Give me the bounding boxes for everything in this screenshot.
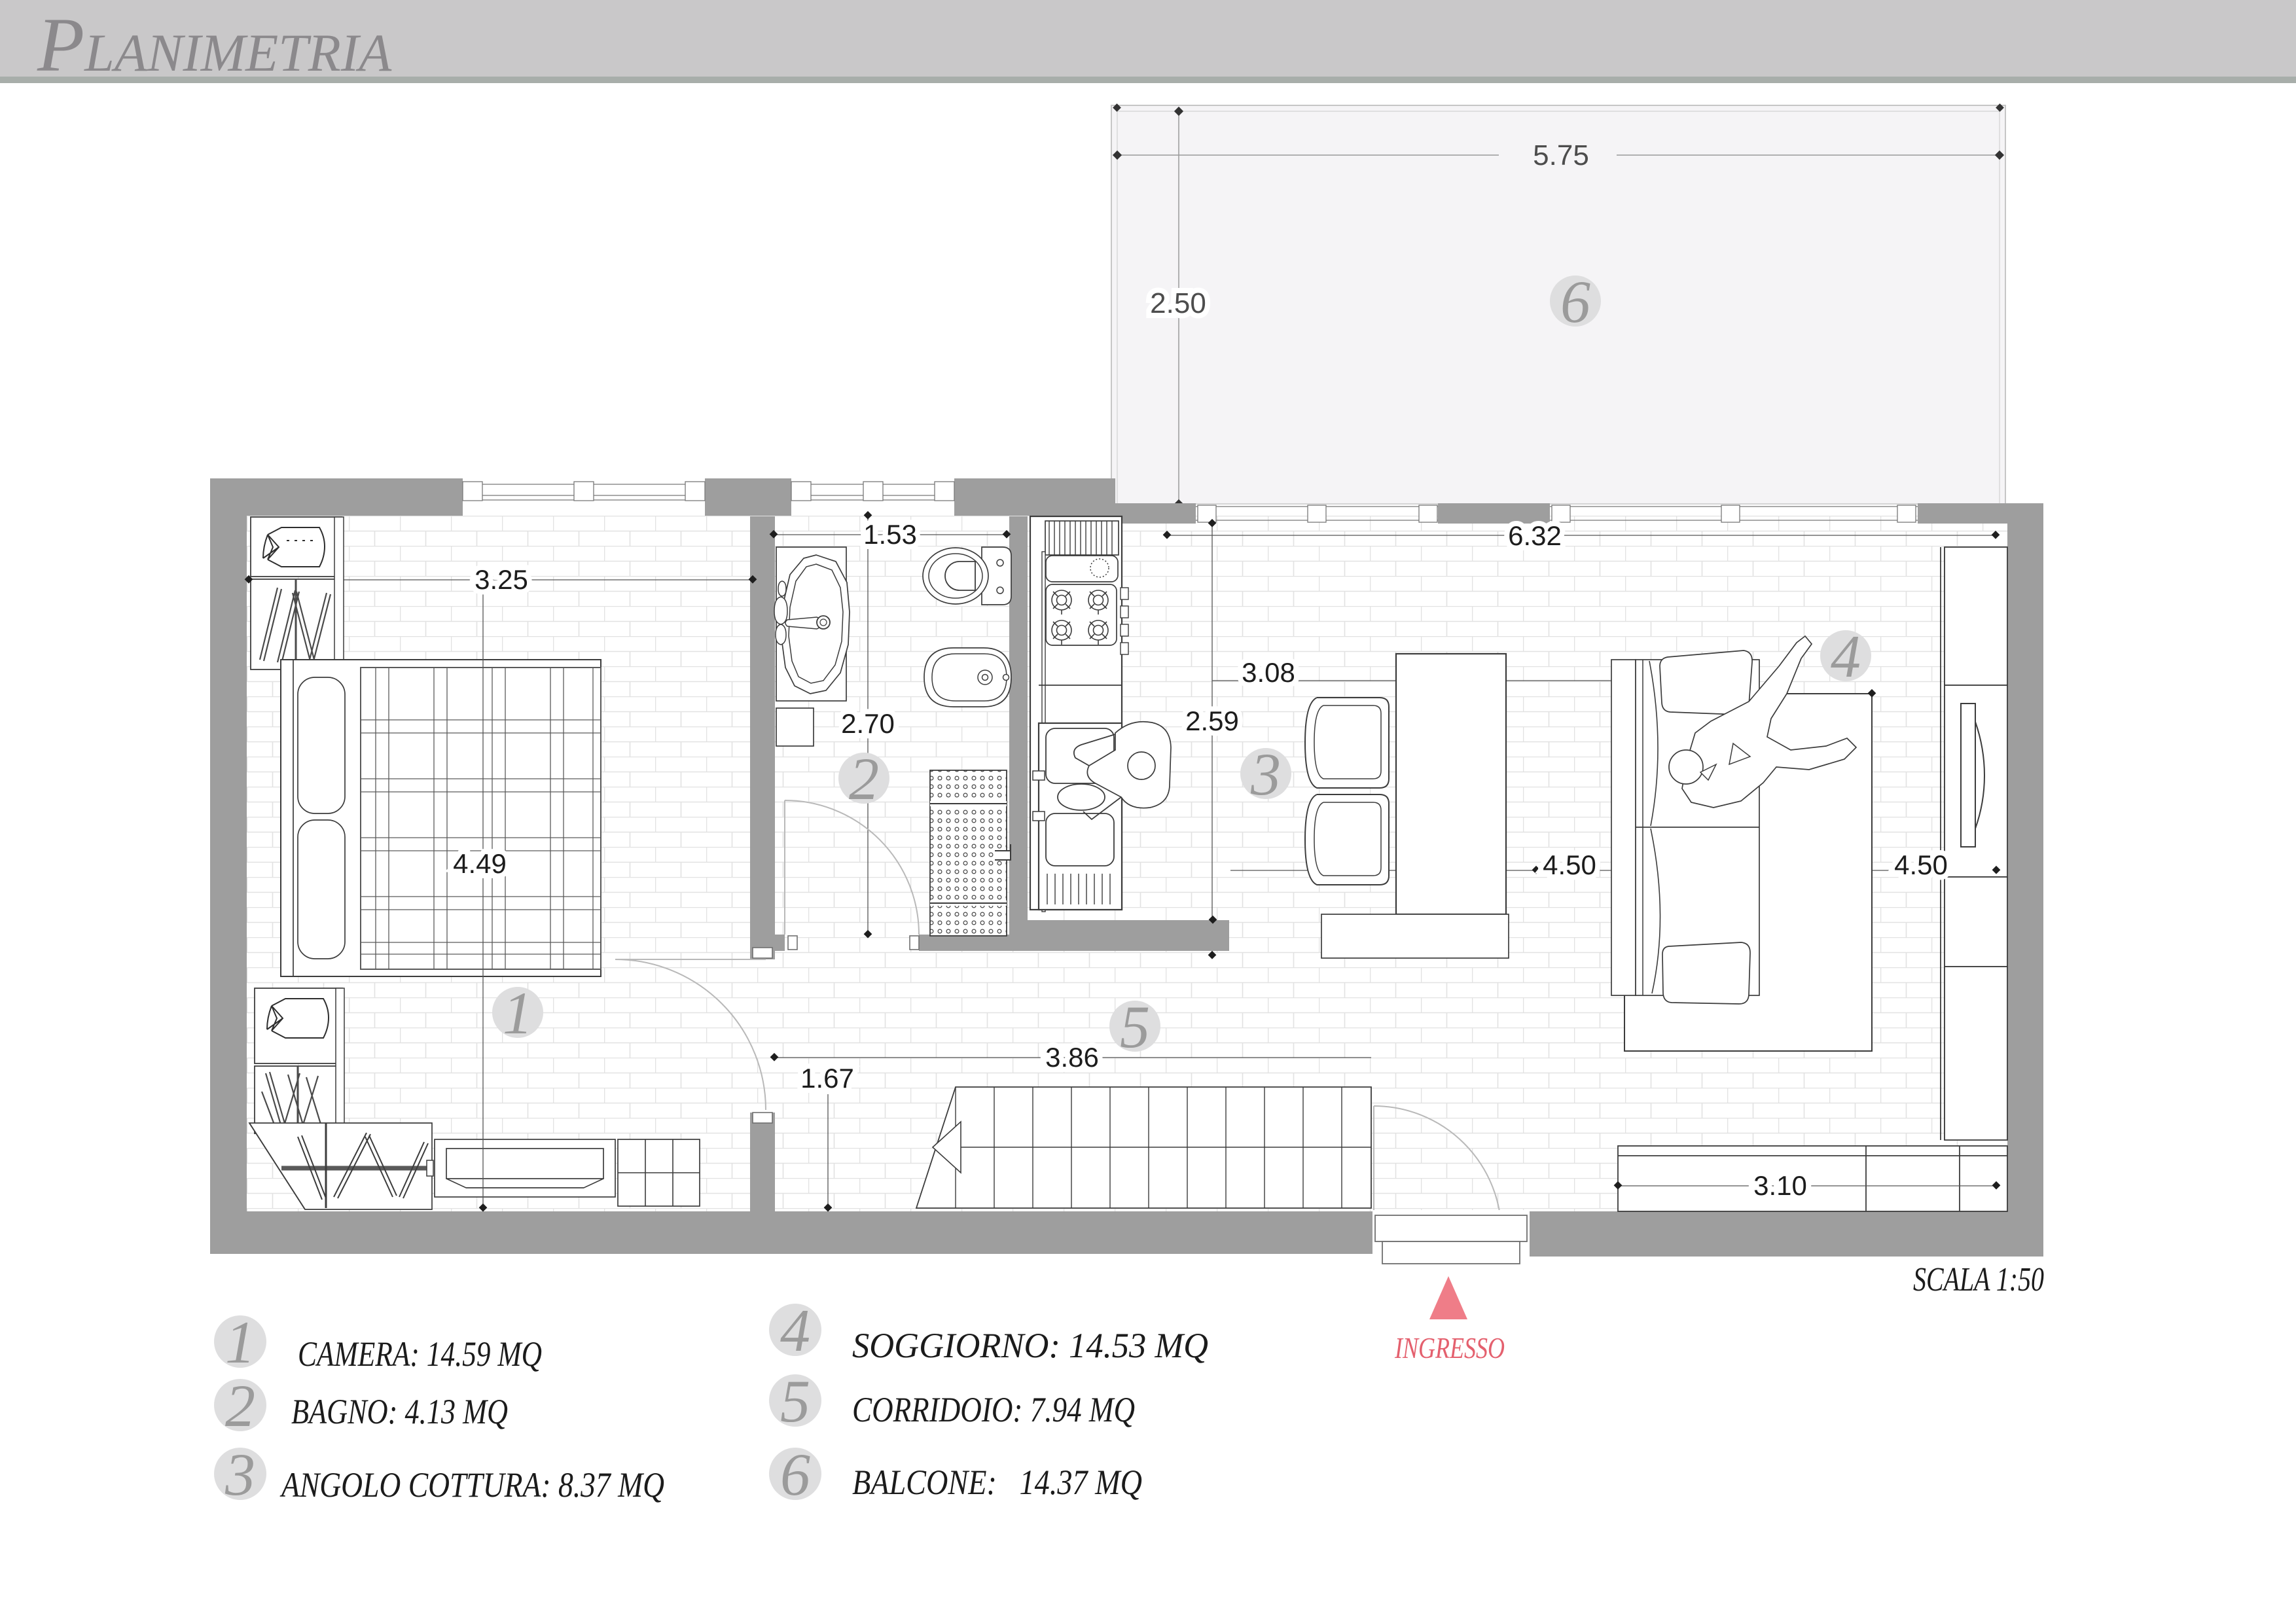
svg-text:3.08: 3.08 [1242, 657, 1295, 688]
svg-text:SOGGIORNO: 14.53 MQ: SOGGIORNO: 14.53 MQ [852, 1326, 1208, 1365]
svg-text:2: 2 [225, 1372, 255, 1439]
svg-text:2.70: 2.70 [841, 708, 895, 739]
svg-text:1.67: 1.67 [800, 1063, 854, 1094]
svg-text:4.50: 4.50 [1894, 849, 1948, 880]
svg-text:2: 2 [849, 745, 879, 812]
svg-text:CAMERA: 14.59 MQ: CAMERA: 14.59 MQ [298, 1334, 542, 1374]
svg-text:4.49: 4.49 [453, 848, 507, 879]
svg-text:1.53: 1.53 [863, 519, 917, 550]
svg-text:5: 5 [780, 1368, 810, 1435]
svg-text:BALCONE: 14.37 MQ: BALCONE: 14.37 MQ [852, 1463, 1142, 1502]
svg-text:INGRESSO: INGRESSO [1394, 1331, 1505, 1364]
svg-text:4: 4 [1831, 623, 1861, 690]
svg-text:3.25: 3.25 [475, 564, 528, 595]
svg-text:4: 4 [780, 1297, 810, 1364]
svg-text:CORRIDOIO: 7.94 MQ: CORRIDOIO: 7.94 MQ [852, 1390, 1135, 1429]
svg-text:3: 3 [224, 1441, 255, 1508]
svg-text:6: 6 [780, 1441, 810, 1508]
svg-text:5.75: 5.75 [1533, 139, 1589, 171]
svg-text:3: 3 [1250, 741, 1281, 808]
svg-text:ANGOLO COTTURA: 8.37 MQ: ANGOLO COTTURA: 8.37 MQ [279, 1465, 664, 1505]
svg-text:SCALA 1:50: SCALA 1:50 [1913, 1261, 2044, 1298]
svg-text:3.86: 3.86 [1045, 1042, 1099, 1073]
svg-text:5: 5 [1120, 993, 1150, 1060]
svg-text:6.32: 6.32 [1508, 520, 1562, 551]
svg-text:1: 1 [225, 1309, 255, 1376]
svg-text:4.50: 4.50 [1543, 849, 1596, 880]
svg-text:3.10: 3.10 [1753, 1170, 1807, 1201]
svg-text:2.59: 2.59 [1185, 705, 1239, 736]
svg-text:2.50: 2.50 [1150, 287, 1206, 319]
svg-text:6: 6 [1560, 268, 1590, 335]
svg-text:1: 1 [503, 980, 533, 1046]
svg-text:BAGNO: 4.13 MQ: BAGNO: 4.13 MQ [291, 1392, 508, 1431]
